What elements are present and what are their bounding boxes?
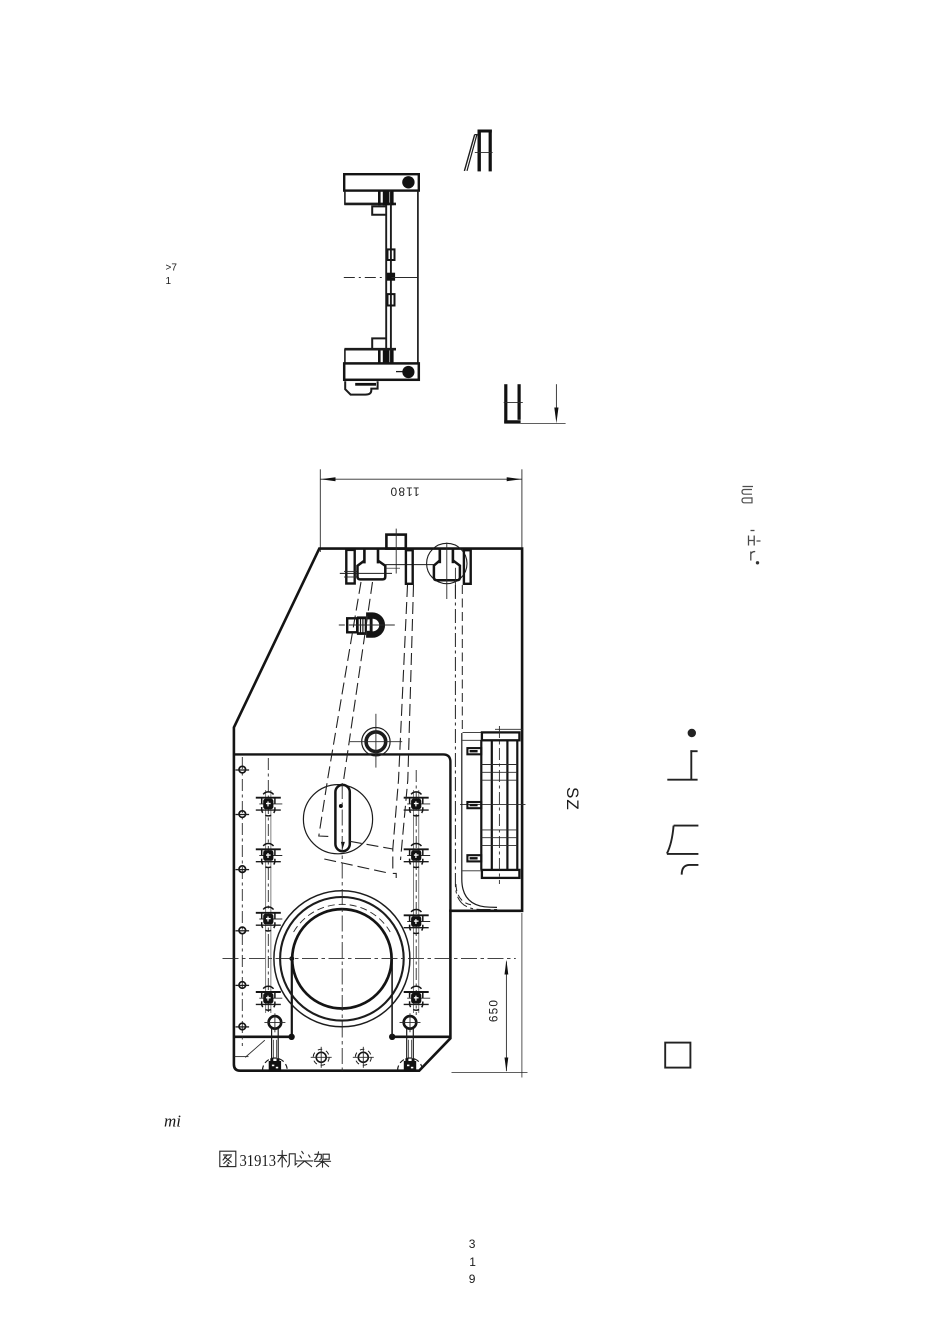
svg-text:SZ: SZ xyxy=(563,787,582,811)
svg-text:>7: >7 xyxy=(166,263,178,274)
svg-text:9: 9 xyxy=(469,1272,476,1286)
svg-text:650: 650 xyxy=(487,999,501,1022)
svg-text:31913: 31913 xyxy=(240,1151,277,1170)
svg-text:1: 1 xyxy=(166,276,172,287)
svg-text:1: 1 xyxy=(469,1255,476,1269)
svg-text:mi: mi xyxy=(164,1112,181,1131)
svg-text:1180: 1180 xyxy=(389,485,419,499)
svg-text:3: 3 xyxy=(469,1237,476,1251)
